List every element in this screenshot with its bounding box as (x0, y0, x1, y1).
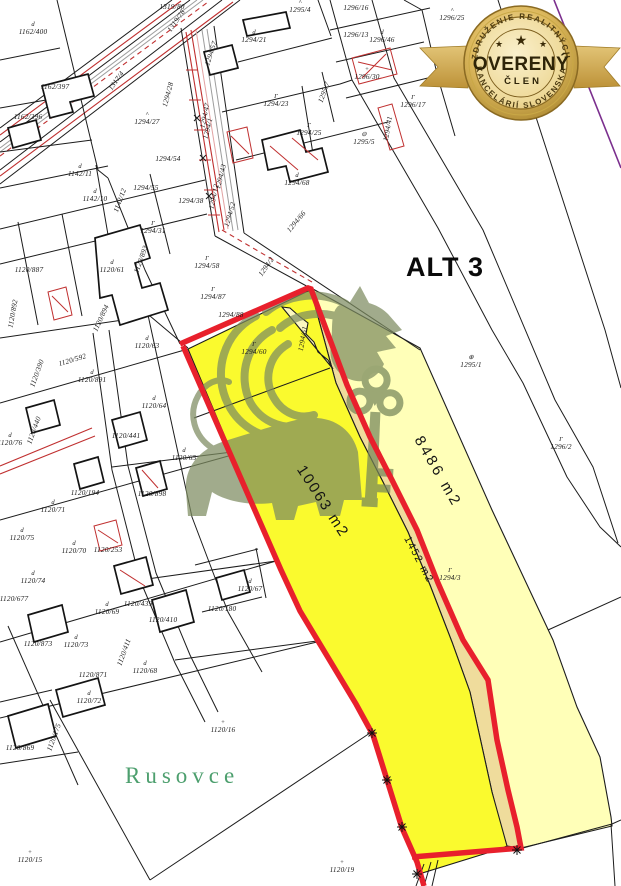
parcel-label: 1120/439 (124, 599, 153, 608)
parcel-label: 1120/887 (15, 265, 44, 274)
parcel-label: 1296/30 (354, 72, 379, 81)
parcel-label: 1142/10 (83, 194, 108, 203)
parcel-label: 1120/75 (10, 533, 35, 542)
parcel-label: 1120/61 (100, 265, 125, 274)
parcel-label: 1120/63 (135, 341, 160, 350)
parcel-label: 1162/396 (14, 112, 43, 121)
star-icon: ★ (515, 32, 528, 48)
parcel-label: 1120/76 (0, 438, 23, 447)
parcel-label: 1120/72 (77, 696, 102, 705)
parcel-label: 1120/180 (208, 604, 237, 613)
parcel-label: 1162/397 (41, 82, 70, 91)
parcel-label: 1294/21 (241, 35, 266, 44)
parcel-label: 1296/17 (400, 100, 425, 109)
parcel-label: 1120/68 (133, 666, 158, 675)
parcel-label: 1120/19 (330, 865, 355, 874)
parcel-label: 1120/67 (238, 584, 263, 593)
parcel-label: 1120/194 (71, 488, 100, 497)
parcel-label: 1294/68 (284, 178, 309, 187)
parcel-label: 1295/5 (353, 137, 375, 146)
parcel-label: 1142/11 (68, 169, 92, 178)
boundary-star-icon (367, 728, 377, 738)
parcel-label: 1294/27 (134, 117, 159, 126)
parcel-label: 1295/1 (460, 360, 481, 369)
alt3-label: ALT 3 (406, 252, 484, 282)
parcel-label: 1120/253 (94, 545, 123, 554)
parcel-label: 1120/410 (149, 615, 178, 624)
cadastral-map-screenshot: d1162/4001162/3971162/3961317/41319/8013… (0, 0, 621, 886)
parcel-label: 1120/441 (112, 431, 141, 440)
parcel-label: 1120/16 (211, 725, 236, 734)
parcel-label: 1294/25 (296, 128, 321, 137)
badge-subtitle: ČLEN (504, 75, 542, 87)
parcel-label: 1294/38 (178, 196, 203, 205)
parcel-label: 1296/16 (343, 3, 368, 12)
parcel-label: 1120/869 (6, 743, 35, 752)
parcel-label: 1294/88 (218, 310, 243, 319)
star-icon: ★ (495, 39, 503, 49)
parcel-label: 1294/60 (241, 347, 266, 356)
parcel-label: 1120/64 (142, 401, 167, 410)
parcel-label: 1294/54 (155, 154, 180, 163)
boundary-star-icon (382, 775, 392, 785)
parcel-label: 1294/87 (200, 292, 225, 301)
parcel-label: 1120/71 (41, 505, 66, 514)
parcel-label: 1294/3 (439, 573, 461, 582)
place-label: Rusovce (125, 763, 239, 788)
parcel-label: 1296/25 (439, 13, 464, 22)
parcel-label: 1120/73 (64, 640, 89, 649)
parcel-label: 1295/4 (289, 5, 311, 14)
boundary-star-icon (512, 845, 522, 855)
parcel-label: 1120/74 (21, 576, 46, 585)
parcel-label: 1294/55 (133, 183, 158, 192)
parcel-label: 1120/898 (138, 489, 167, 498)
boundary-star-icon (412, 869, 422, 879)
parcel-label: 1162/400 (19, 27, 48, 36)
parcel-label: 1296/2 (550, 442, 572, 451)
boundary-star-icon (397, 822, 407, 832)
parcel-label: 1294/31 (140, 226, 165, 235)
badge-title: OVERENÝ (473, 53, 569, 75)
parcel-label: 1120/70 (62, 546, 87, 555)
parcel-label: 1120/69 (95, 607, 120, 616)
parcel-label: 1296/46 (369, 35, 394, 44)
parcel-label: 1120/65 (172, 453, 197, 462)
parcel-label: 1120/871 (79, 670, 108, 679)
star-icon: ★ (539, 39, 547, 49)
parcel-label: 1294/58 (194, 261, 219, 270)
parcel-label: 1120/873 (24, 639, 53, 648)
parcel-label: 1120/891 (78, 375, 107, 384)
map-canvas: d1162/4001162/3971162/3961317/41319/8013… (0, 0, 621, 886)
parcel-label: 1294/23 (263, 99, 288, 108)
parcel-label: 1120/677 (0, 594, 28, 603)
parcel-label: 1120/15 (18, 855, 43, 864)
parcel-label: 1296/13 (343, 30, 368, 39)
